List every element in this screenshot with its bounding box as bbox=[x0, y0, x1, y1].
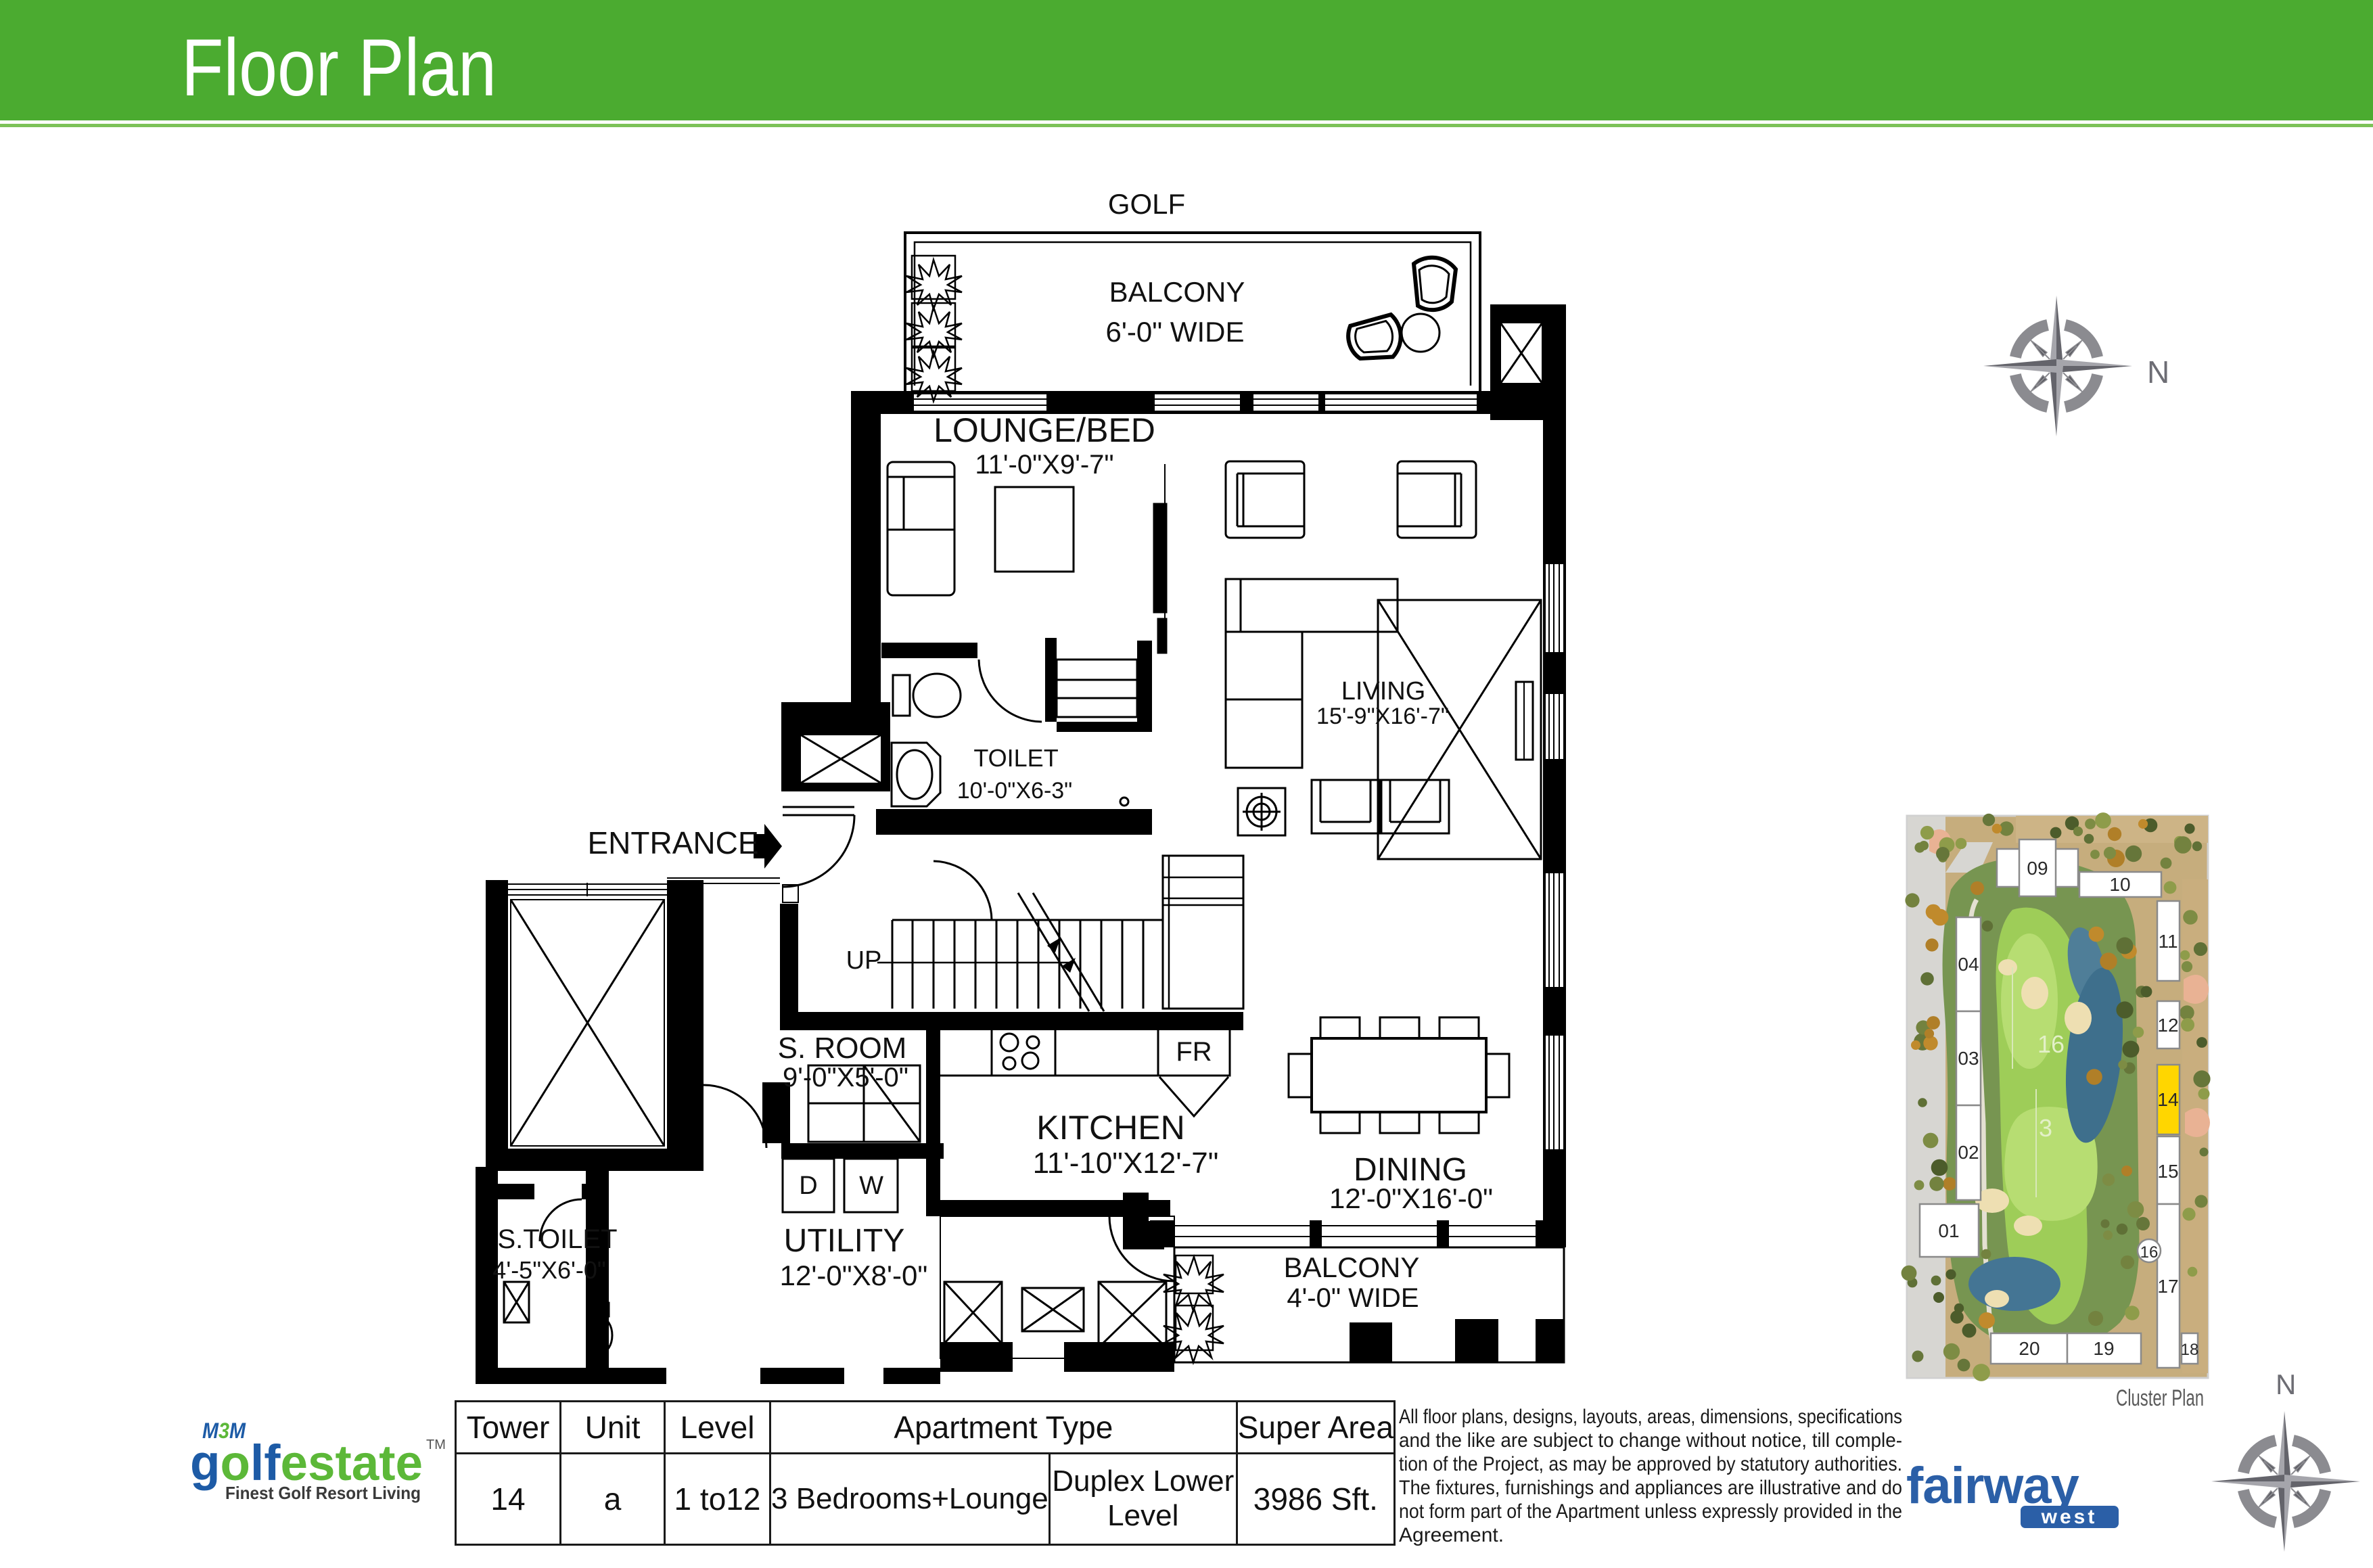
svg-text:04: 04 bbox=[1958, 954, 1979, 975]
svg-text:LIVING: LIVING bbox=[1341, 677, 1426, 706]
svg-text:18: 18 bbox=[2181, 1341, 2199, 1359]
svg-text:6'-0" WIDE: 6'-0" WIDE bbox=[1106, 316, 1245, 348]
svg-text:W: W bbox=[859, 1172, 883, 1200]
svg-text:03: 03 bbox=[1958, 1048, 1979, 1069]
svg-text:ENTRANCE: ENTRANCE bbox=[587, 825, 758, 860]
svg-text:9'-0"X5'-0": 9'-0"X5'-0" bbox=[783, 1063, 908, 1092]
svg-text:UP: UP bbox=[846, 946, 882, 975]
svg-text:TM: TM bbox=[426, 1437, 446, 1452]
svg-text:BALCONY: BALCONY bbox=[1109, 276, 1245, 308]
svg-text:4'-5"X6'-0": 4'-5"X6'-0" bbox=[492, 1256, 605, 1284]
svg-text:16: 16 bbox=[2037, 1030, 2065, 1058]
svg-text:14: 14 bbox=[2157, 1089, 2178, 1110]
svg-text:S.TOILET: S.TOILET bbox=[497, 1224, 617, 1254]
svg-text:10: 10 bbox=[2109, 874, 2130, 895]
svg-text:16: 16 bbox=[2140, 1243, 2159, 1262]
svg-text:N: N bbox=[2276, 1368, 2296, 1400]
svg-text:and the like are subject to ch: and the like are subject to change witho… bbox=[1399, 1429, 1902, 1452]
svg-text:01: 01 bbox=[1938, 1220, 1959, 1241]
svg-text:LOUNGE/BED: LOUNGE/BED bbox=[934, 411, 1155, 449]
svg-text:11: 11 bbox=[2158, 931, 2178, 952]
svg-text:20: 20 bbox=[2019, 1338, 2040, 1359]
svg-text:Finest Golf Resort Living: Finest Golf Resort Living bbox=[225, 1483, 421, 1503]
svg-text:N: N bbox=[2147, 354, 2169, 390]
svg-text:BALCONY: BALCONY bbox=[1284, 1251, 1420, 1283]
svg-text:4'-0" WIDE: 4'-0" WIDE bbox=[1287, 1283, 1419, 1313]
svg-text:KITCHEN: KITCHEN bbox=[1036, 1109, 1184, 1147]
svg-text:FR: FR bbox=[1176, 1037, 1212, 1067]
svg-text:12: 12 bbox=[2157, 1015, 2178, 1036]
svg-text:TOILET: TOILET bbox=[973, 744, 1058, 772]
svg-text:All floor plans, designs, layo: All floor plans, designs, layouts, areas… bbox=[1399, 1406, 1902, 1428]
svg-text:17: 17 bbox=[2157, 1276, 2178, 1297]
svg-text:3: 3 bbox=[2039, 1114, 2052, 1142]
svg-text:19: 19 bbox=[2093, 1338, 2114, 1359]
svg-text:15'-9"X16'-7": 15'-9"X16'-7" bbox=[1316, 704, 1449, 729]
svg-text:12'-0"X16'-0": 12'-0"X16'-0" bbox=[1329, 1182, 1493, 1214]
svg-text:west: west bbox=[2041, 1506, 2098, 1528]
svg-text:Cluster Plan: Cluster Plan bbox=[2116, 1385, 2204, 1411]
svg-text:09: 09 bbox=[2027, 858, 2048, 879]
svg-text:02: 02 bbox=[1958, 1142, 1979, 1163]
svg-text:GOLF: GOLF bbox=[1108, 188, 1185, 220]
svg-text:The fixtures, furnishings and: The fixtures, furnishings and appliances… bbox=[1399, 1477, 1902, 1499]
svg-text:Agreement.: Agreement. bbox=[1399, 1524, 1504, 1546]
svg-text:D: D bbox=[799, 1172, 817, 1200]
svg-text:11'-0"X9'-7": 11'-0"X9'-7" bbox=[975, 450, 1113, 480]
svg-text:15: 15 bbox=[2157, 1161, 2178, 1182]
svg-text:not form part of the Apartment: not form part of the Apartment unless ex… bbox=[1399, 1500, 1902, 1523]
svg-text:UTILITY: UTILITY bbox=[784, 1223, 905, 1259]
svg-text:S. ROOM: S. ROOM bbox=[778, 1032, 907, 1065]
svg-text:10'-0"X6-3": 10'-0"X6-3" bbox=[957, 778, 1073, 804]
svg-text:tion of the Project, as may be: tion of the Project, as may be approved … bbox=[1399, 1453, 1902, 1475]
svg-text:11'-10"X12'-7": 11'-10"X12'-7" bbox=[1033, 1147, 1219, 1180]
svg-text:Floor Plan: Floor Plan bbox=[181, 22, 497, 113]
svg-text:12'-0"X8'-0": 12'-0"X8'-0" bbox=[780, 1260, 928, 1291]
